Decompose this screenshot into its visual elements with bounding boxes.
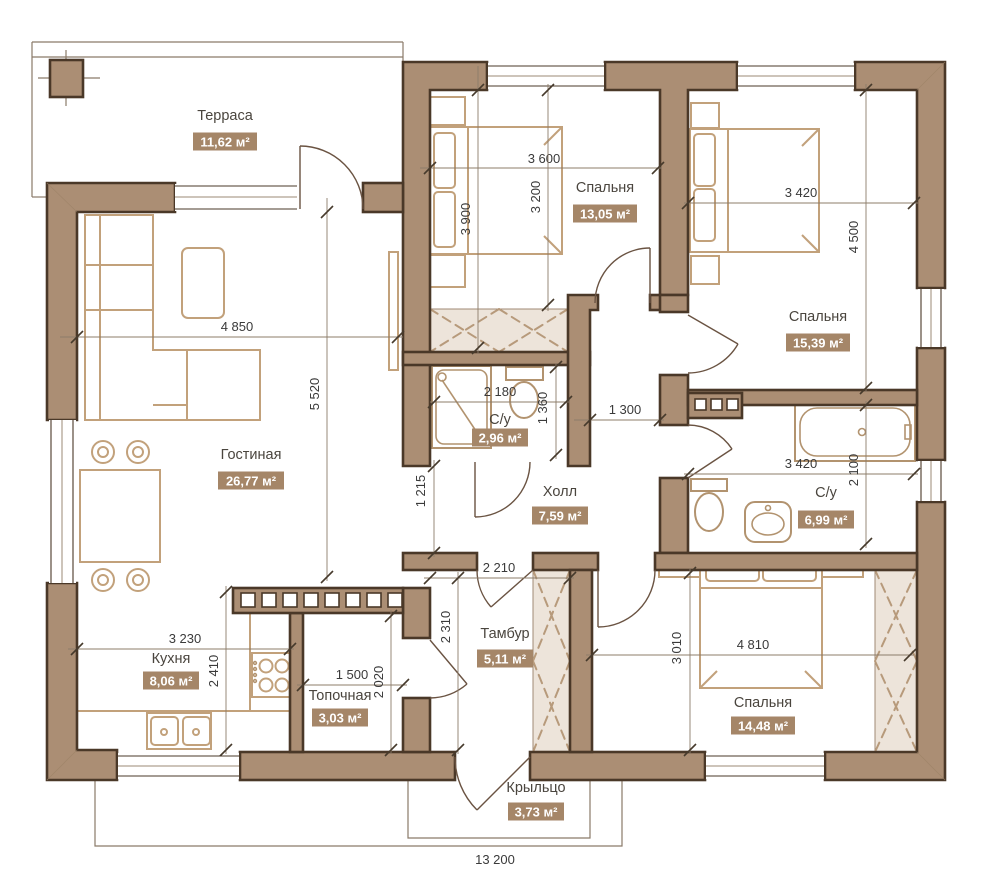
door-small-bath — [475, 462, 530, 517]
dim-living-h: 5 520 — [307, 198, 333, 583]
niche-partition — [233, 588, 403, 613]
dim-label: 2 210 — [483, 560, 516, 575]
window-bedroom3 — [706, 753, 824, 779]
room-bedroom1: Спальня 13,05 м² — [573, 180, 637, 223]
door-vestibule — [477, 570, 533, 607]
room-area: 13,05 м² — [580, 207, 631, 222]
dim-label: 2 180 — [484, 384, 517, 399]
room-area: 2,96 м² — [479, 431, 523, 446]
room-area: 5,11 м² — [484, 652, 527, 667]
dim-label: 5 520 — [307, 378, 322, 411]
dim-label: 1 215 — [413, 475, 428, 508]
room-terrace: Терраса 11,62 м² — [193, 108, 257, 151]
room-bedroom3: Спальня 14,48 м² — [731, 695, 795, 735]
dim-boiler-h: 2 020 — [371, 610, 397, 756]
dim-label: 3 010 — [669, 632, 684, 665]
dim-label: 3 420 — [785, 456, 818, 471]
room-name: С/у — [815, 485, 838, 501]
room-name: С/у — [489, 412, 512, 428]
stove — [252, 653, 290, 697]
window-bedroom1 — [488, 63, 604, 89]
tv-console — [389, 252, 398, 370]
dim-bedroom3-h: 3 010 — [669, 567, 696, 756]
room-area: 14,48 м² — [738, 719, 789, 734]
sofa — [85, 215, 260, 420]
window-living — [175, 184, 297, 211]
dim-label: 4 810 — [737, 637, 770, 652]
window-kitchen — [118, 753, 239, 779]
dim-label: 13 200 — [475, 852, 515, 867]
room-hall: Холл 7,59 м² — [532, 484, 588, 525]
niche-block — [688, 393, 742, 418]
room-name: Тамбур — [480, 626, 529, 642]
room-name: Терраса — [197, 108, 254, 124]
room-kitchen: Кухня 8,06 м² — [143, 651, 199, 690]
washbasin — [745, 502, 791, 542]
dim-total-w: 13 200 — [475, 852, 515, 867]
room-name: Спальня — [576, 180, 634, 196]
room-area: 11,62 м² — [200, 135, 250, 150]
room-name: Спальня — [734, 695, 792, 711]
kitchen-sink — [147, 713, 211, 749]
room-boiler: Топочная 3,03 м² — [309, 688, 372, 727]
dim-label: 2 100 — [846, 454, 861, 487]
room-big-bath: С/у 6,99 м² — [798, 485, 854, 529]
room-name: Гостиная — [221, 447, 282, 463]
dim-living-w: 4 850 — [60, 319, 404, 343]
bathtub — [795, 403, 915, 461]
room-vestibule: Тамбур 5,11 м² — [477, 626, 533, 668]
dim-passage-h: 1 215 — [413, 460, 440, 559]
kitchen-counter — [77, 592, 290, 749]
dim-label: 4 850 — [221, 319, 254, 334]
dim-label: 4 500 — [846, 221, 861, 254]
dim-bedroom2-w: 3 420 — [682, 185, 920, 209]
room-area: 8,06 м² — [150, 674, 194, 689]
floor-plan-page: 3 600 3 900 3 200 3 420 4 500 4 850 — [0, 0, 999, 872]
room-area: 15,39 м² — [793, 336, 844, 351]
closet-bedroom3 — [875, 570, 917, 752]
window-bedroom2-top — [738, 63, 854, 89]
door-bedroom2 — [688, 315, 738, 373]
dim-label: 3 900 — [458, 203, 473, 236]
door-bedroom1 — [595, 248, 650, 303]
dim-bedroom3-w: 4 810 — [586, 637, 916, 661]
closet-bedroom1 — [430, 309, 568, 352]
dim-label: 1 500 — [336, 667, 369, 682]
window-bath-right — [918, 461, 944, 501]
room-labels: Терраса 11,62 м² Спальня 13,05 м² Спальн… — [143, 108, 854, 821]
dim-label: 2 020 — [371, 666, 386, 699]
dim-label: 1 360 — [535, 392, 550, 425]
dim-label: 3 200 — [528, 181, 543, 214]
door-boiler — [430, 640, 467, 698]
window-bedroom2-right — [918, 289, 944, 347]
dim-bedroom1-h: 3 200 — [528, 84, 554, 311]
dim-label: 2 410 — [206, 655, 221, 688]
dim-label: 3 230 — [169, 631, 202, 646]
room-name: Топочная — [309, 688, 372, 704]
dim-label: 1 300 — [609, 402, 642, 417]
room-name: Холл — [543, 484, 577, 500]
room-bedroom2: Спальня 15,39 м² — [786, 309, 850, 352]
floor-plan: 3 600 3 900 3 200 3 420 4 500 4 850 — [0, 0, 999, 872]
room-area: 6,99 м² — [805, 513, 849, 528]
room-area: 3,03 м² — [319, 711, 363, 726]
door-big-bath — [688, 425, 732, 478]
dining-set — [80, 441, 160, 591]
room-area: 26,77 м² — [226, 474, 277, 489]
door-terrace — [300, 146, 363, 209]
closet-vestibule — [533, 570, 570, 752]
room-area: 3,73 м² — [515, 805, 559, 820]
room-name: Крыльцо — [506, 780, 565, 796]
coffee-table — [182, 248, 224, 318]
toilet-big-bath — [691, 479, 727, 531]
door-bedroom3 — [598, 570, 655, 627]
room-name: Кухня — [152, 651, 191, 667]
dim-label: 2 310 — [438, 611, 453, 644]
room-area: 7,59 м² — [539, 509, 583, 524]
dim-bedroom1-w: 3 600 — [420, 151, 664, 174]
room-name: Спальня — [789, 309, 847, 325]
dim-label: 3 600 — [528, 151, 561, 166]
room-porch: Крыльцо 3,73 м² — [506, 780, 565, 821]
dim-label: 3 420 — [785, 185, 818, 200]
terrace-post — [50, 60, 83, 97]
room-living: Гостиная 26,77 м² — [218, 447, 284, 490]
window-left — [49, 420, 76, 583]
